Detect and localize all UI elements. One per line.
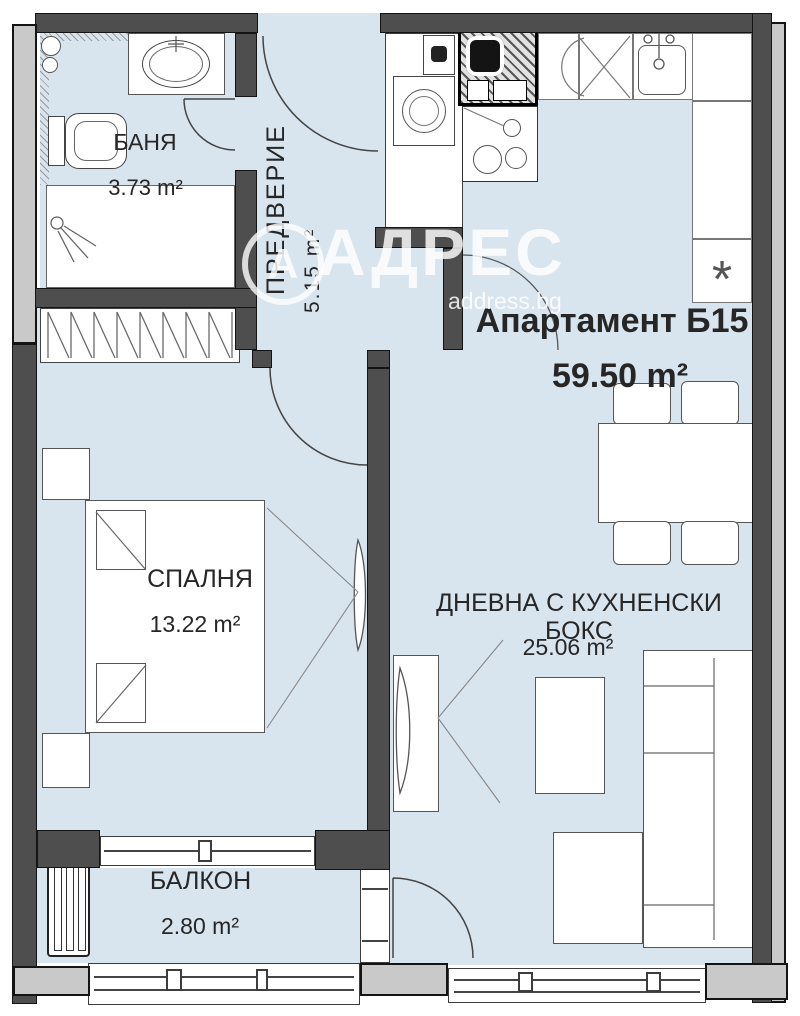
right-outer-face	[772, 22, 786, 1003]
watermark-logo-letter: А	[268, 240, 298, 288]
cooktop	[462, 106, 538, 182]
living-bottom-window	[448, 968, 706, 1003]
apartment-area: 59.50 m²	[535, 358, 705, 395]
kitchen-unit-drawer-1	[467, 80, 489, 101]
nightstand-bottom	[42, 733, 90, 788]
bedroom-living-wall	[367, 368, 390, 870]
closet	[40, 308, 240, 363]
kitchen-sink	[638, 45, 686, 95]
ottoman	[553, 832, 643, 944]
dining-table	[598, 423, 753, 523]
tv-cabinet	[393, 655, 439, 812]
counter-right-divider-1	[693, 100, 751, 102]
living-window-line2	[454, 991, 700, 993]
hall-bottom-wall-right-stub	[367, 350, 390, 368]
bottom-left-block	[13, 966, 90, 996]
nightstand-top	[42, 448, 90, 500]
washing-machine-drum-inner	[409, 96, 439, 126]
bedroom-label: СПАЛНЯ	[140, 566, 260, 594]
bathroom-label: БАНЯ	[100, 130, 190, 155]
bottom-right-block	[705, 963, 788, 1000]
pillow-top	[96, 510, 146, 570]
balcony-label: БАЛКОН	[138, 868, 263, 896]
living-area: 25.06 m²	[503, 635, 633, 660]
living-window-mullion-2	[646, 972, 661, 992]
bottom-middle-block	[360, 963, 448, 996]
left-wall	[12, 344, 37, 1004]
boiler-circle-small	[42, 57, 58, 73]
small-appliance-knob	[431, 46, 447, 62]
watermark-brand: АДРЕС	[318, 214, 566, 290]
watermark-logo-circle: А	[242, 223, 324, 305]
balcony-railing-line1	[94, 976, 354, 978]
top-wall-right	[380, 13, 757, 33]
balcony-door-jamb	[360, 868, 390, 963]
boiler-circle-large	[41, 36, 61, 56]
pillow-bottom	[96, 663, 146, 723]
bathroom-door-opening	[235, 97, 257, 170]
bedroom-balcony-window-mullion	[198, 840, 212, 862]
counter-divider-1	[578, 34, 580, 99]
bedroom-balcony-wall-left	[37, 830, 100, 868]
balcony-door-jamb-line2	[362, 940, 388, 942]
balcony-area: 2.80 m²	[140, 914, 260, 939]
bath-sink-bowl-inner	[149, 46, 203, 82]
cooktop-burner-small	[503, 119, 521, 137]
bedroom-area: 13.22 m²	[135, 612, 255, 637]
bathroom-bottom-wall	[35, 288, 257, 308]
balcony-railing	[88, 963, 360, 1005]
balcony-railing-line2	[94, 989, 354, 991]
right-wall	[752, 13, 772, 1003]
entrance-opening	[258, 13, 380, 35]
coffee-table	[535, 677, 605, 794]
balcony-railing-mullion-2	[256, 969, 268, 991]
top-wall-left	[35, 13, 258, 33]
dining-chair-4	[681, 521, 739, 565]
cooktop-burner-large	[473, 145, 502, 174]
watermark-site: address.bg	[448, 288, 562, 315]
bathroom-tile-band-top	[49, 33, 129, 41]
radiator-fin-1	[54, 861, 62, 951]
living-window-line1	[454, 979, 700, 981]
sofa	[643, 650, 753, 948]
kitchen-unit-sink	[466, 36, 504, 76]
cooktop-burner-medium	[505, 147, 527, 169]
shower-zone	[46, 185, 235, 288]
fridge-marker: *	[700, 252, 744, 309]
bathroom-area: 3.73 m²	[98, 176, 193, 200]
bath-hall-wall-upper	[235, 33, 257, 97]
bedroom-floor-east	[257, 368, 367, 838]
counter-right-divider-2	[693, 238, 751, 240]
living-window-mullion-1	[518, 972, 533, 992]
counter-divider-2	[632, 34, 634, 99]
bedroom-door-opening	[270, 350, 367, 368]
hall-bottom-wall-left-stub	[252, 350, 272, 368]
dining-chair-3	[613, 521, 671, 565]
balcony-railing-mullion-1	[166, 969, 182, 991]
bedroom-balcony-wall-right	[315, 830, 390, 870]
kitchen-unit-drawer-2	[493, 80, 527, 101]
floor-plan: *	[0, 0, 800, 1016]
left-outer-column	[12, 24, 37, 344]
balcony-door-jamb-line1	[362, 888, 388, 890]
radiator-fin-2	[66, 861, 74, 951]
radiator-fin-3	[78, 861, 86, 951]
toilet-tank	[48, 116, 65, 166]
